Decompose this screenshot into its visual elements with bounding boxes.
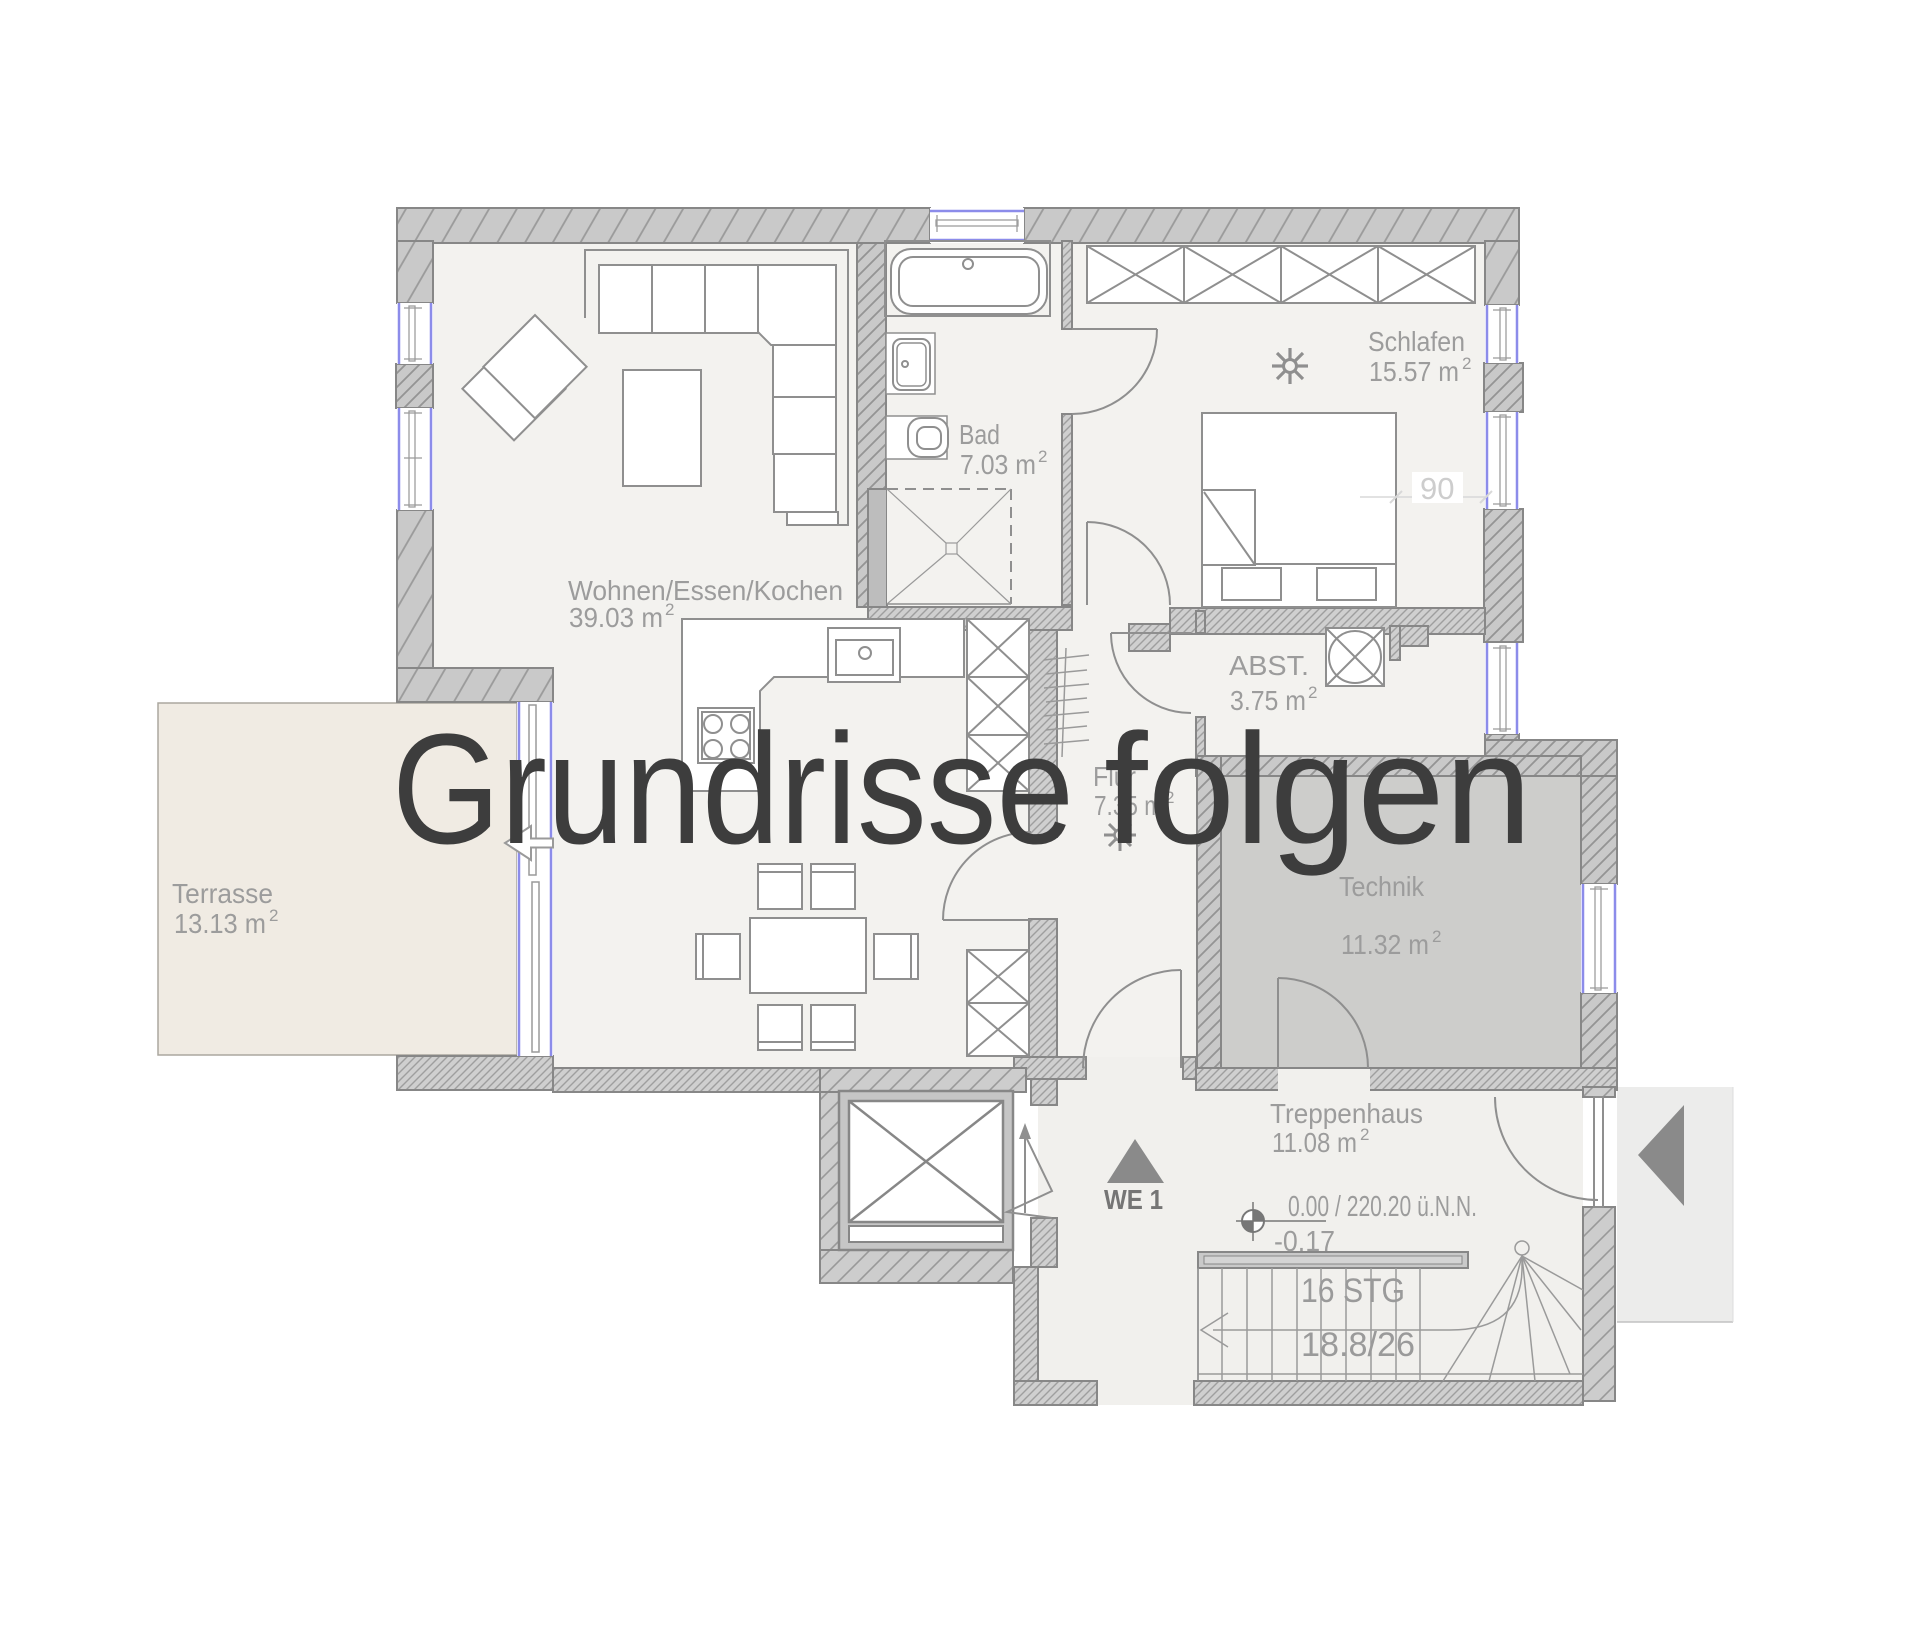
svg-text:0.00 / 220.20 ü.N.N.: 0.00 / 220.20 ü.N.N. [1288,1191,1477,1223]
svg-text:7.03 m: 7.03 m [960,449,1036,480]
svg-text:Schlafen: Schlafen [1368,326,1465,357]
svg-text:Treppenhaus: Treppenhaus [1270,1098,1423,1129]
svg-text:2: 2 [1038,447,1047,466]
svg-text:11.08 m: 11.08 m [1272,1127,1357,1158]
svg-text:2: 2 [1360,1125,1369,1144]
svg-text:13.13 m: 13.13 m [174,908,266,939]
svg-text:2: 2 [1308,683,1317,702]
svg-text:2: 2 [1462,354,1471,373]
svg-text:16 STG: 16 STG [1301,1272,1405,1310]
svg-text:-0.17: -0.17 [1274,1226,1335,1258]
svg-text:39.03 m: 39.03 m [569,602,663,633]
svg-text:2: 2 [1432,927,1441,946]
svg-text:Grundrisse: Grundrisse [392,702,1074,877]
svg-text:WE 1: WE 1 [1104,1184,1163,1215]
svg-text:2: 2 [665,600,674,619]
svg-text:90: 90 [1420,471,1454,506]
svg-text:18.8/26: 18.8/26 [1301,1326,1415,1364]
svg-text:ABST.: ABST. [1229,650,1309,681]
svg-text:11.32 m: 11.32 m [1341,929,1429,960]
svg-text:Terrasse: Terrasse [172,878,273,909]
svg-text:2: 2 [269,906,278,925]
svg-text:Bad: Bad [959,419,1000,450]
svg-text:15.57 m: 15.57 m [1369,356,1459,387]
svg-text:folgen: folgen [1104,702,1532,877]
